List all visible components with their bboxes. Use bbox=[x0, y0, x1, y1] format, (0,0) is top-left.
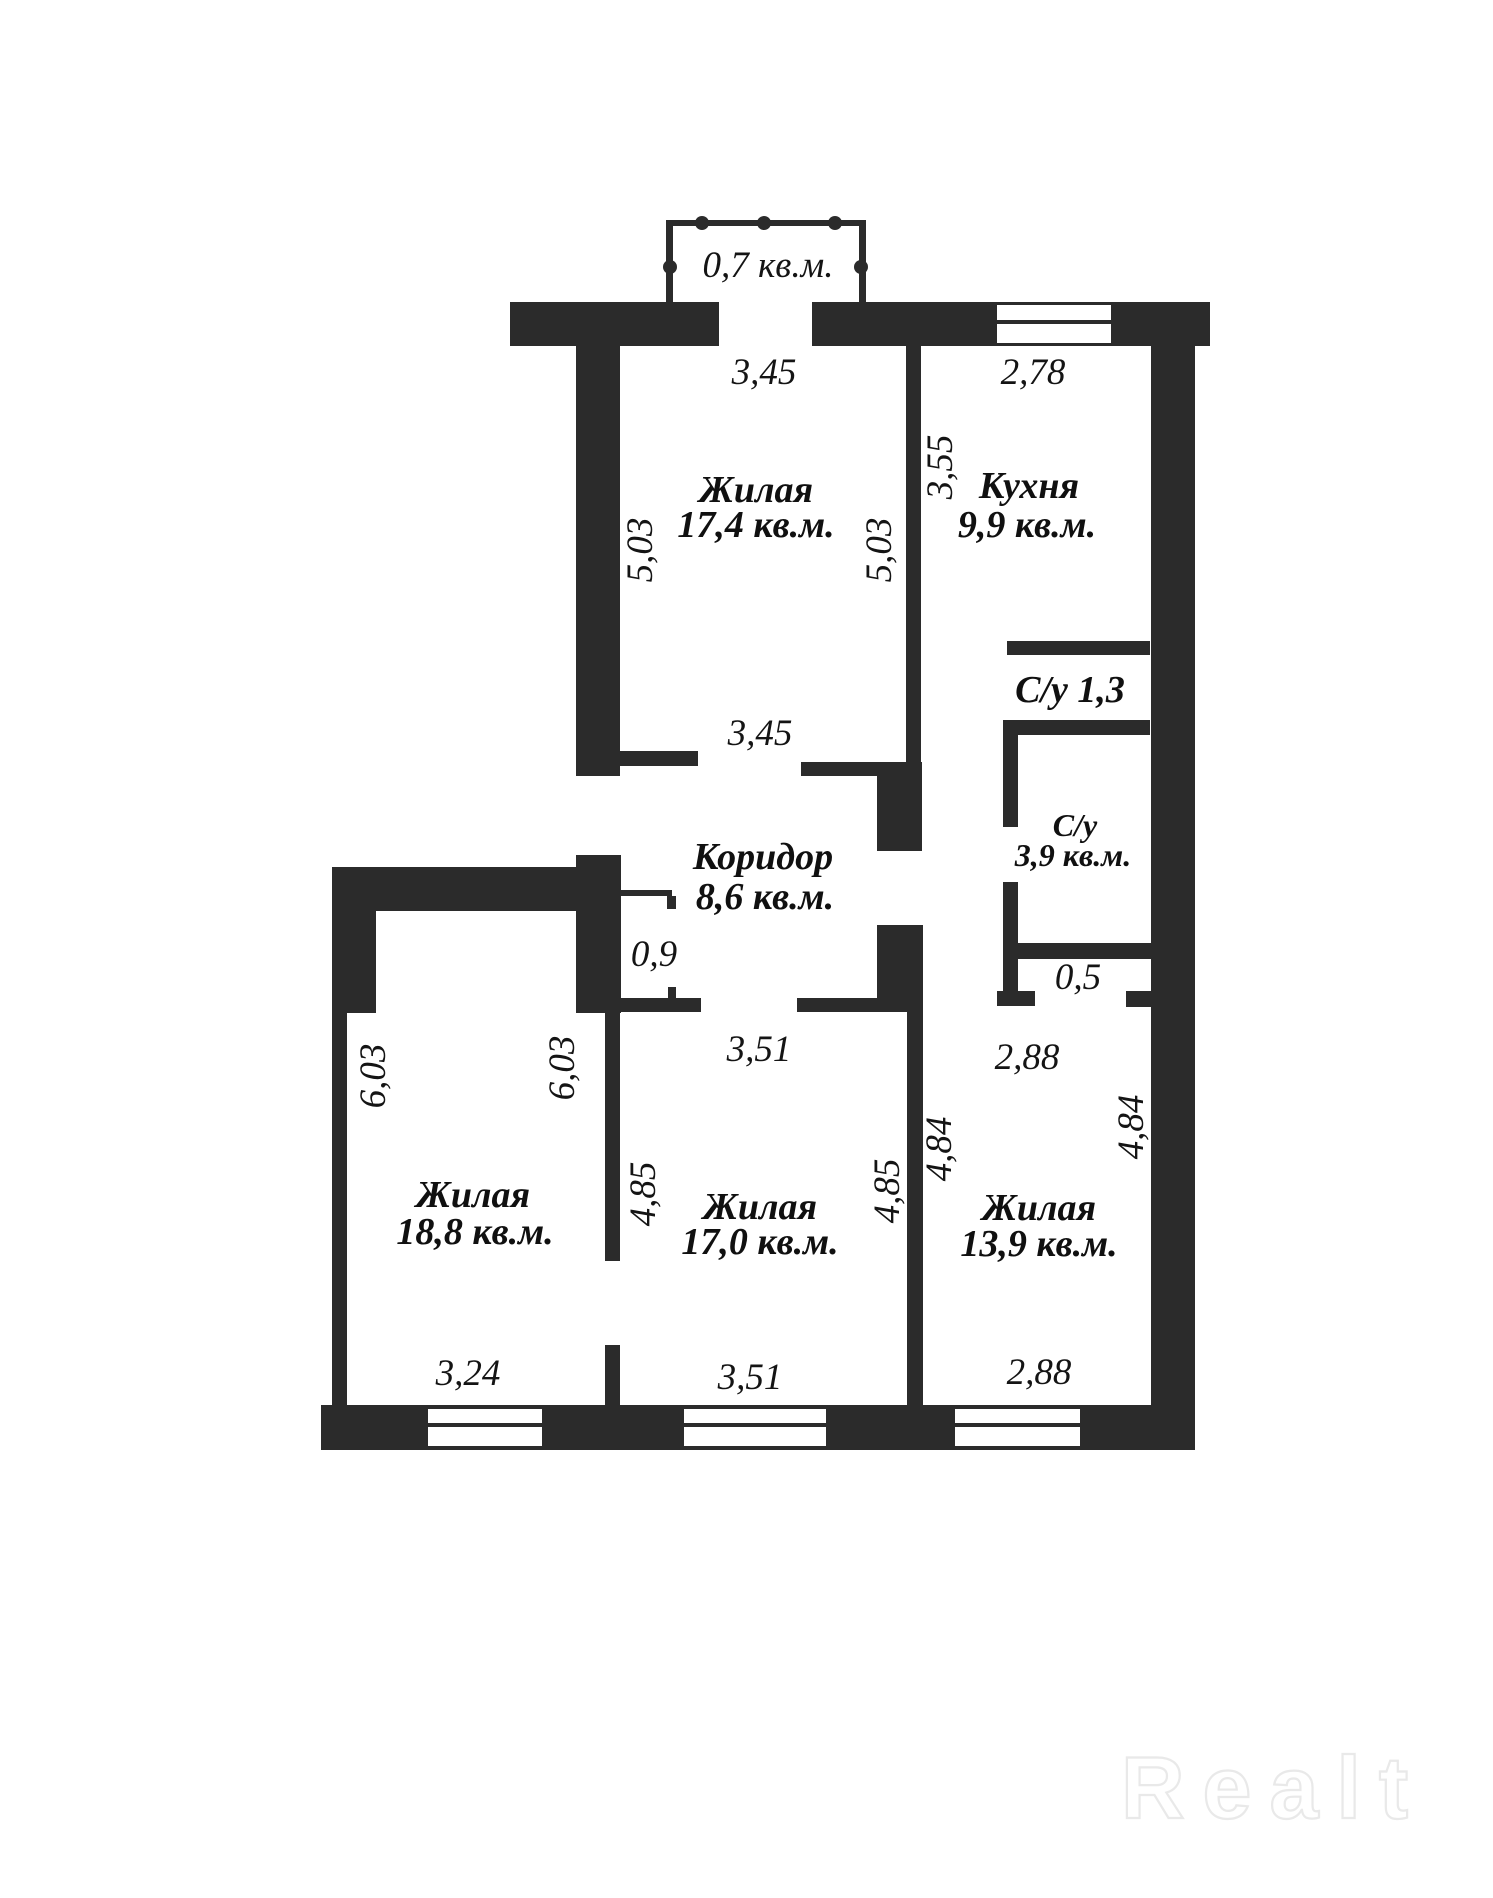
svg-text:2,88: 2,88 bbox=[995, 1037, 1060, 1078]
svg-text:18,8 кв.м.: 18,8 кв.м. bbox=[396, 1211, 553, 1253]
svg-text:3,55: 3,55 bbox=[920, 435, 961, 501]
svg-text:3,51: 3,51 bbox=[717, 1357, 783, 1398]
svg-text:13,9 кв.м.: 13,9 кв.м. bbox=[960, 1223, 1117, 1265]
svg-text:17,0 кв.м.: 17,0 кв.м. bbox=[681, 1221, 838, 1263]
svg-text:17,4 кв.м.: 17,4 кв.м. bbox=[677, 504, 834, 546]
svg-text:4,84: 4,84 bbox=[919, 1117, 960, 1182]
svg-text:Кухня: Кухня bbox=[978, 465, 1079, 507]
svg-text:3,51: 3,51 bbox=[726, 1029, 792, 1070]
svg-text:Коридор: Коридор bbox=[692, 836, 833, 878]
svg-text:3,45: 3,45 bbox=[731, 352, 797, 393]
svg-text:3,9 кв.м.: 3,9 кв.м. bbox=[1014, 837, 1131, 873]
svg-text:4,85: 4,85 bbox=[623, 1162, 664, 1227]
svg-text:0,9: 0,9 bbox=[631, 934, 677, 975]
svg-text:6,03: 6,03 bbox=[353, 1044, 394, 1109]
svg-text:6,03: 6,03 bbox=[542, 1036, 583, 1101]
svg-text:8,6 кв.м.: 8,6 кв.м. bbox=[696, 876, 834, 918]
svg-text:4,85: 4,85 bbox=[867, 1159, 908, 1224]
svg-text:Жилая: Жилая bbox=[413, 1174, 530, 1216]
svg-text:9,9 кв.м.: 9,9 кв.м. bbox=[958, 504, 1096, 546]
svg-text:Realt: Realt bbox=[1121, 1738, 1426, 1837]
svg-text:3,24: 3,24 bbox=[435, 1353, 501, 1394]
svg-text:0,7 кв.м.: 0,7 кв.м. bbox=[703, 245, 834, 286]
svg-text:С/у 1,3: С/у 1,3 bbox=[1015, 669, 1125, 711]
svg-text:5,03: 5,03 bbox=[859, 518, 900, 583]
svg-text:3,45: 3,45 bbox=[727, 713, 793, 754]
svg-text:0,5: 0,5 bbox=[1055, 957, 1101, 998]
svg-text:4,84: 4,84 bbox=[1111, 1095, 1152, 1160]
svg-text:2,78: 2,78 bbox=[1001, 352, 1066, 393]
svg-text:5,03: 5,03 bbox=[620, 518, 661, 583]
svg-text:2,88: 2,88 bbox=[1007, 1352, 1072, 1393]
